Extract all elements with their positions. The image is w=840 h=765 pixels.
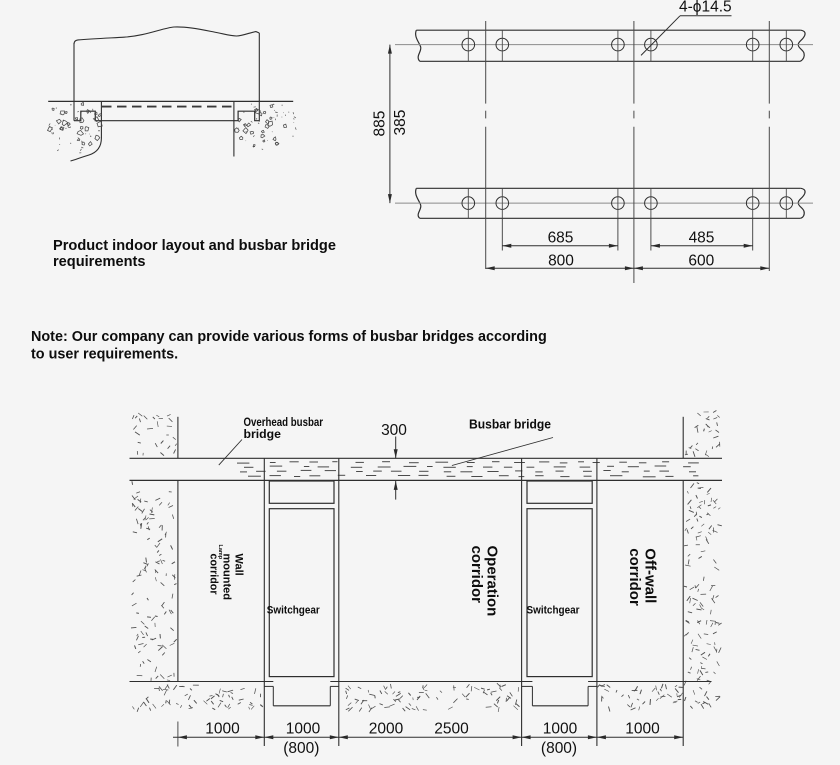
svg-text:Product indoor layout and busb: Product indoor layout and busbar bridge — [53, 238, 336, 254]
svg-text:Note: Our company can provide: Note: Our company can provide various fo… — [31, 329, 547, 345]
svg-text:requirements: requirements — [53, 254, 145, 270]
svg-text:corridor: corridor — [626, 548, 643, 606]
svg-text:Operation: Operation — [484, 546, 501, 617]
svg-text:Off-wall: Off-wall — [642, 548, 659, 603]
svg-text:4-ϕ14.5: 4-ϕ14.5 — [679, 0, 732, 16]
svg-text:1000: 1000 — [543, 720, 578, 737]
svg-text:685: 685 — [548, 229, 574, 246]
svg-text:485: 485 — [689, 229, 715, 246]
svg-text:(800): (800) — [283, 740, 319, 757]
svg-text:800: 800 — [548, 253, 574, 270]
svg-text:1000: 1000 — [625, 720, 660, 737]
svg-text:385: 385 — [392, 110, 409, 136]
svg-text:bridge: bridge — [244, 427, 282, 441]
svg-text:mounted: mounted — [221, 554, 233, 600]
svg-text:to user requirements.: to user requirements. — [31, 347, 178, 363]
svg-text:Switchgear: Switchgear — [527, 604, 581, 616]
svg-text:corridor: corridor — [468, 546, 485, 604]
svg-text:885: 885 — [372, 111, 389, 137]
svg-text:(800): (800) — [541, 740, 577, 757]
svg-text:Busbar bridge: Busbar bridge — [469, 417, 551, 432]
svg-text:300: 300 — [381, 422, 407, 439]
svg-text:2000: 2000 — [369, 720, 404, 737]
svg-text:Wall: Wall — [233, 554, 245, 576]
svg-text:600: 600 — [688, 253, 714, 270]
svg-text:2500: 2500 — [434, 720, 469, 737]
svg-text:1000: 1000 — [205, 720, 240, 737]
svg-text:Switchgear: Switchgear — [267, 604, 321, 616]
svg-text:1000: 1000 — [286, 720, 321, 737]
